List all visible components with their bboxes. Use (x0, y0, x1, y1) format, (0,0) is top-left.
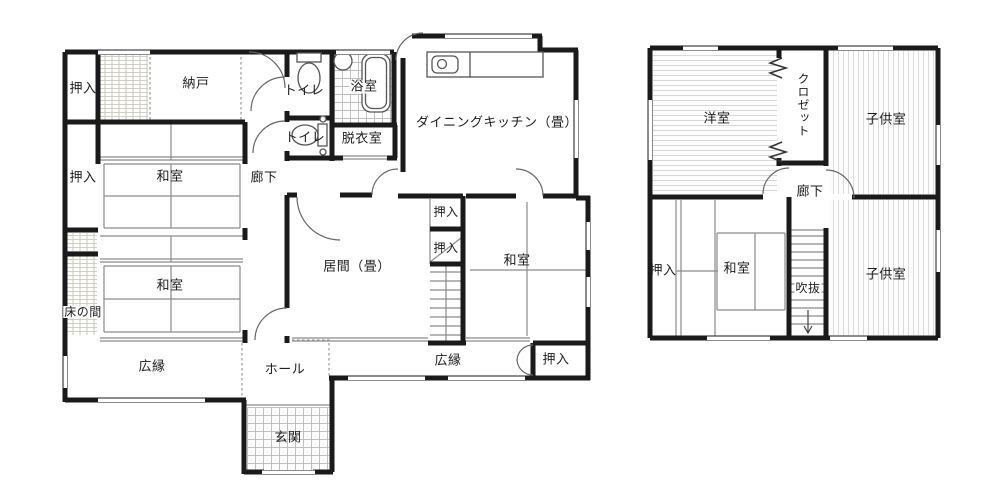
room-label-oshiire-se: 押入 (542, 354, 569, 367)
room-label-oshiire-2f: 押入 (649, 265, 676, 278)
room-label-toilet2: トイレ (285, 132, 326, 145)
room-label-hall: ホール (265, 364, 306, 377)
room-label-oshiire-c2: 押入 (433, 242, 458, 254)
window-symbol (936, 125, 941, 165)
accordion-door-icon (770, 58, 786, 78)
room-label-rouka: 廊下 (250, 172, 277, 185)
room-label-nando: 納戸 (182, 78, 209, 91)
door-arc-washitsu-e (516, 169, 543, 196)
door-arc-ima (297, 197, 340, 240)
room-label-kodomo-s: 子供室 (866, 269, 907, 282)
room-label-washitsu-nw: 和室 (156, 171, 183, 184)
room-label-hiroen-w: 広縁 (138, 361, 165, 374)
floor2-walls (650, 48, 938, 338)
window-symbol (336, 50, 390, 55)
window-symbol (98, 398, 205, 403)
room-label-bath: 浴室 (349, 81, 378, 94)
room-label-oshiire-w: 押入 (69, 172, 96, 185)
window-symbol (98, 50, 150, 55)
door-arc-toilet2 (253, 121, 285, 153)
room-label-oshiire-c1: 押入 (433, 206, 458, 218)
door-arc-kitchen (372, 169, 398, 195)
down-arrow-icon (804, 310, 812, 333)
window-symbol (63, 356, 68, 388)
window-symbol (648, 100, 653, 160)
window-symbol (445, 34, 532, 39)
kitchen-sink-icon (432, 56, 458, 73)
door-arc-toilet1 (251, 77, 285, 111)
floor-plan-canvas: 押入 納戸 トイレ 浴室 トイレ 脱衣室 ダイニングキッチン（畳） 押入 和室 … (0, 0, 1000, 500)
room-label-ima: 居間（畳） (323, 261, 391, 274)
room-label-washitsu-sw: 和室 (156, 280, 183, 293)
room-label-washitsu-e: 和室 (503, 255, 530, 268)
room-label-tokonoma: 床の間 (63, 306, 103, 318)
room-label-fukinuke: 吹抜 (794, 282, 821, 294)
window-symbol (448, 376, 525, 381)
door-arc-hall (255, 308, 287, 340)
room-label-datsuishitsu: 脱衣室 (342, 133, 383, 146)
room-label-genkan: 玄関 (274, 432, 301, 445)
washbasin-icon (334, 52, 352, 70)
window-symbol (586, 277, 591, 307)
window-symbol (707, 336, 770, 341)
room-label-oshiire-nw: 押入 (69, 83, 96, 96)
window-symbol (586, 222, 591, 250)
window-symbol (830, 336, 867, 341)
window-symbol (838, 46, 893, 51)
room-label-closet: クロゼット (796, 73, 810, 138)
kitchen-counter (427, 52, 543, 77)
room-label-toilet1: トイレ (284, 85, 325, 98)
entrance-door-symbol (262, 470, 315, 475)
window-symbol (348, 376, 425, 381)
floorplan-linework (0, 0, 1000, 500)
room-label-rouka2: 廊下 (796, 186, 823, 199)
room-label-hiroen-e: 広縁 (434, 355, 461, 368)
door-arc-youshitsu (763, 168, 789, 194)
room-label-washitsu-2f: 和室 (723, 263, 750, 276)
door-arc-kodomo-s (826, 170, 854, 198)
room-label-dk: ダイニングキッチン（畳） (416, 117, 578, 130)
window-symbol (683, 46, 718, 51)
window-symbol (936, 230, 941, 272)
room-label-youshitsu: 洋室 (703, 113, 730, 126)
room-label-kodomo-n: 子供室 (866, 114, 907, 127)
